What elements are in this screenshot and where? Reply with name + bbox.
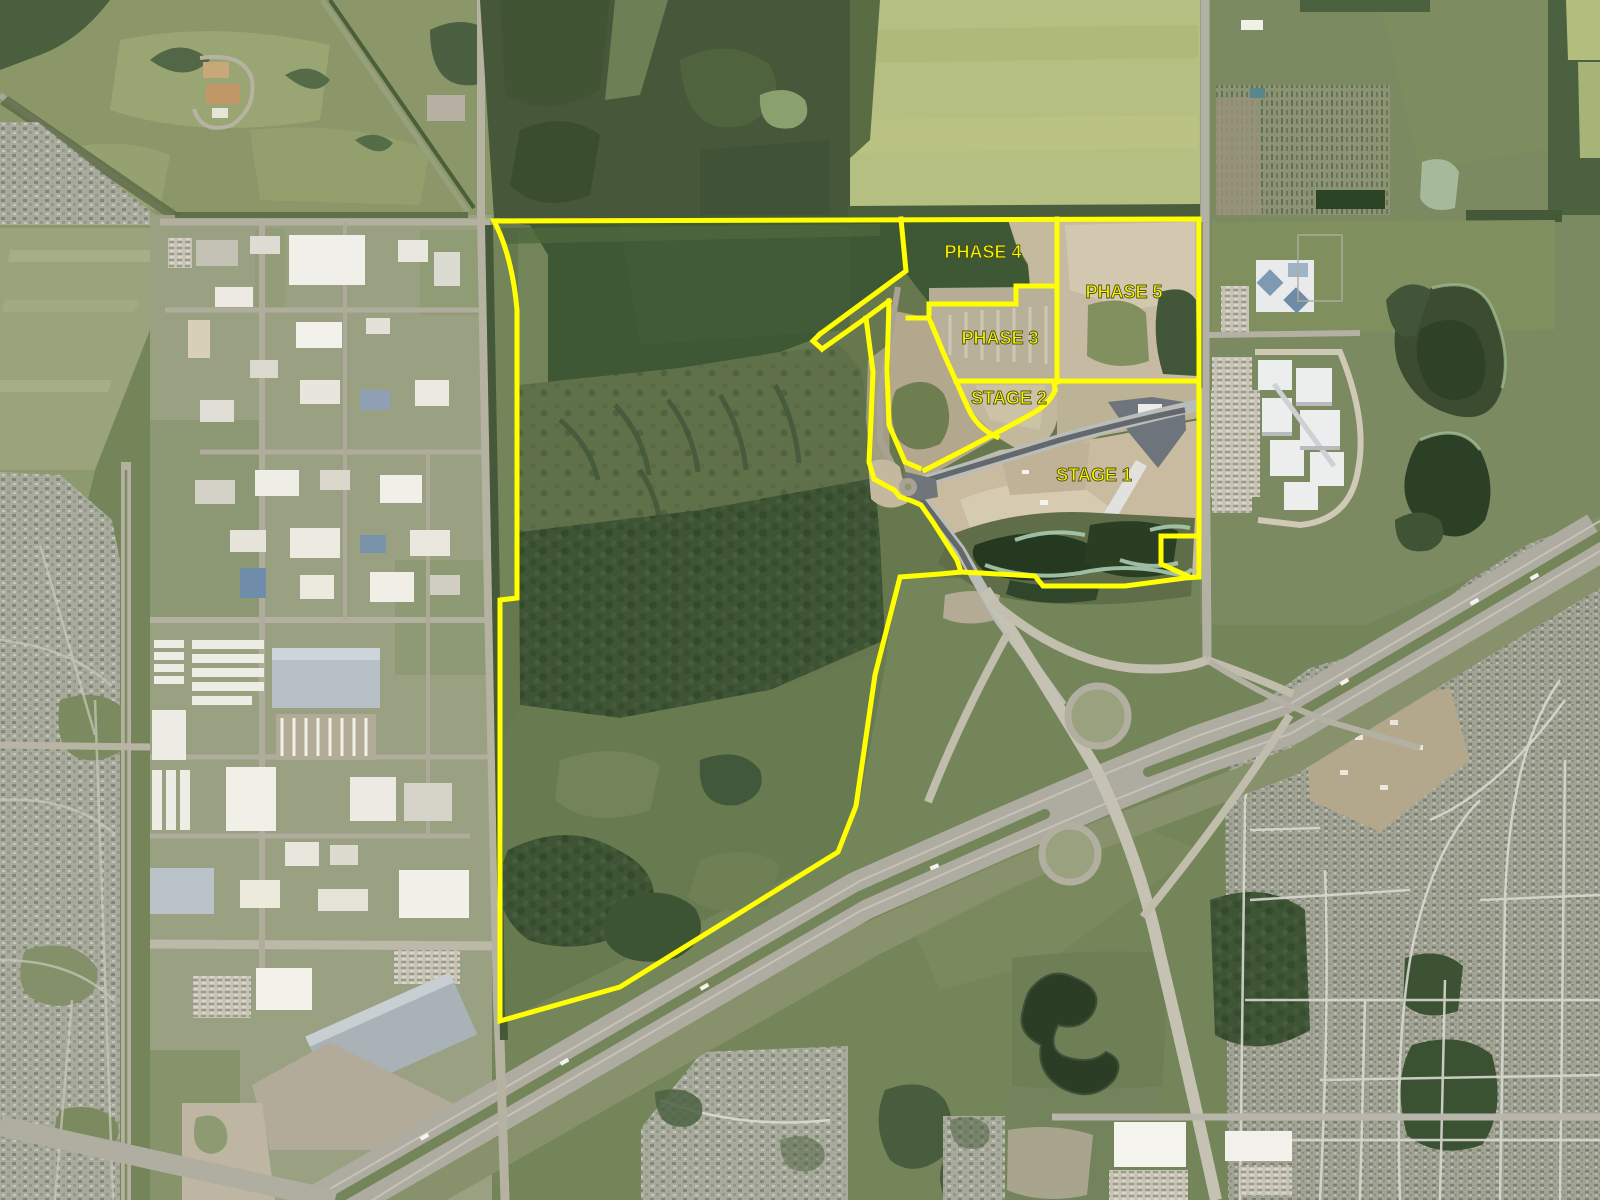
- svg-text:STAGE 1: STAGE 1: [1056, 465, 1132, 485]
- svg-text:PHASE 3: PHASE 3: [961, 328, 1038, 348]
- svg-text:PHASE 4: PHASE 4: [944, 242, 1021, 262]
- svg-text:PHASE 5: PHASE 5: [1085, 282, 1162, 302]
- svg-text:STAGE 2: STAGE 2: [971, 388, 1047, 408]
